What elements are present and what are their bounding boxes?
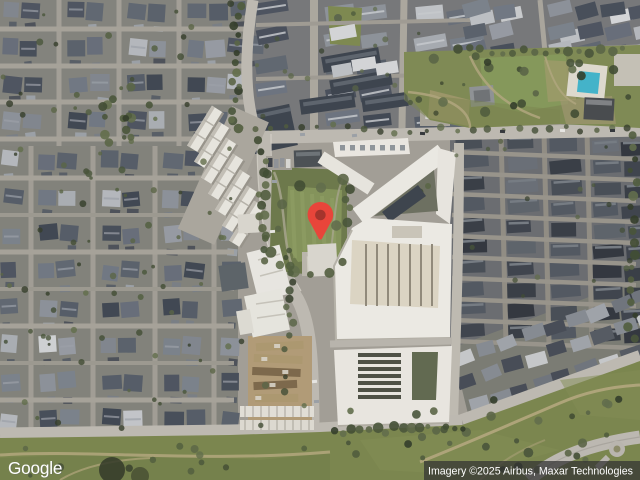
svg-text:Imagery ©2025 Airbus, Maxar Te: Imagery ©2025 Airbus, Maxar Technologies: [428, 466, 633, 478]
svg-text:Google: Google: [8, 458, 62, 478]
